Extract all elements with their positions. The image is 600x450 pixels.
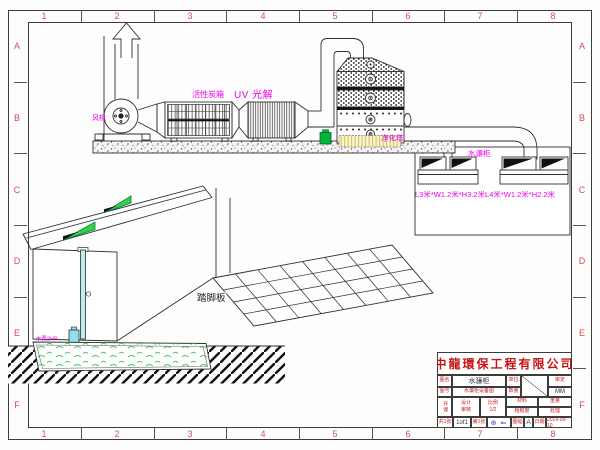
pump-label: 水泵2HP: [36, 335, 58, 343]
titleblock-check-label: 审核: [461, 408, 471, 414]
titleblock-finish-label: 处理: [538, 407, 572, 417]
roof-vent: [104, 196, 131, 213]
water-tank: [33, 342, 211, 371]
projection-symbol-icon: ⊕ ⇐: [487, 417, 511, 428]
carbon-box: [157, 102, 239, 141]
titleblock-design-label: 设计: [461, 401, 471, 407]
titleblock-no-label: 图号: [437, 387, 452, 397]
titleblock-sign-cell: 设计 审核: [452, 397, 480, 417]
water-curtain-label: 水濂柜: [468, 148, 491, 158]
tread-plate-label: 踏脚板: [197, 292, 226, 304]
titleblock-units: MM: [548, 387, 572, 397]
tower-manhole: [404, 114, 411, 127]
titleblock-date-label: 日期: [533, 417, 546, 428]
titleblock-dept: 环保: [437, 397, 452, 417]
titleblock-roughness-label: 粗糙度: [506, 407, 538, 417]
titleblock-name-label: 图名: [437, 375, 452, 387]
titleblock-size-label: 图幅: [511, 417, 524, 428]
titleblock-drawing-name: 水濂柜: [452, 375, 506, 387]
titleblock-date: 2019-06-10: [546, 417, 572, 428]
floor-grid: [213, 245, 433, 326]
titleblock-scale-cell: 比例 1/2: [480, 397, 506, 417]
titleblock-rev-label: 审定: [548, 375, 572, 387]
titleblock-company: 中龍環保工程有限公司: [437, 352, 572, 375]
treatment-line-elevation: [93, 23, 537, 160]
carbon-box-label: 活性炭箱: [192, 89, 224, 99]
dimension-text: L3米*W1.2米*H3.2米L4米*W1.2米*H2.2米: [415, 189, 556, 199]
titleblock-slash-cell: [521, 375, 548, 397]
roof-vent: [63, 222, 95, 240]
uv-label: UV 光解: [234, 88, 273, 101]
titleblock-weight-label: 重量: [538, 397, 572, 407]
drawing-sheet: 1 2 3 4 5 6 7 8 1 2 3 4 5 6 7 8 A B C D …: [0, 0, 600, 450]
titleblock-sheet: 1of1: [453, 417, 471, 428]
up-arrow-icon: [113, 23, 140, 58]
titleblock-scale-value: 1/2: [490, 408, 497, 414]
titleblock-sheets-label: 共1张: [437, 417, 453, 428]
tower-pump: [320, 130, 331, 144]
tower-label: 净化塔: [381, 133, 404, 143]
titleblock-scale-label: 比例: [488, 401, 498, 407]
uv-unit: [239, 102, 308, 141]
titleblock-sheet2-label: 第1张: [471, 417, 487, 428]
exhaust-stack: [113, 23, 140, 99]
spray-booth: [8, 186, 433, 384]
title-block: 中龍環保工程有限公司 图名 水濂柜 单位 审定 图号 水濂柜设备图 数量 MM …: [437, 352, 572, 428]
titleblock-drawing-no: 水濂柜设备图: [452, 387, 506, 397]
titleblock-unit-label: 单位: [506, 375, 521, 387]
fan-label: 风机: [92, 113, 106, 122]
titleblock-material-label: 材料: [506, 397, 538, 407]
titleblock-size: A: [524, 417, 533, 428]
titleblock-qty-label: 数量: [506, 387, 521, 397]
